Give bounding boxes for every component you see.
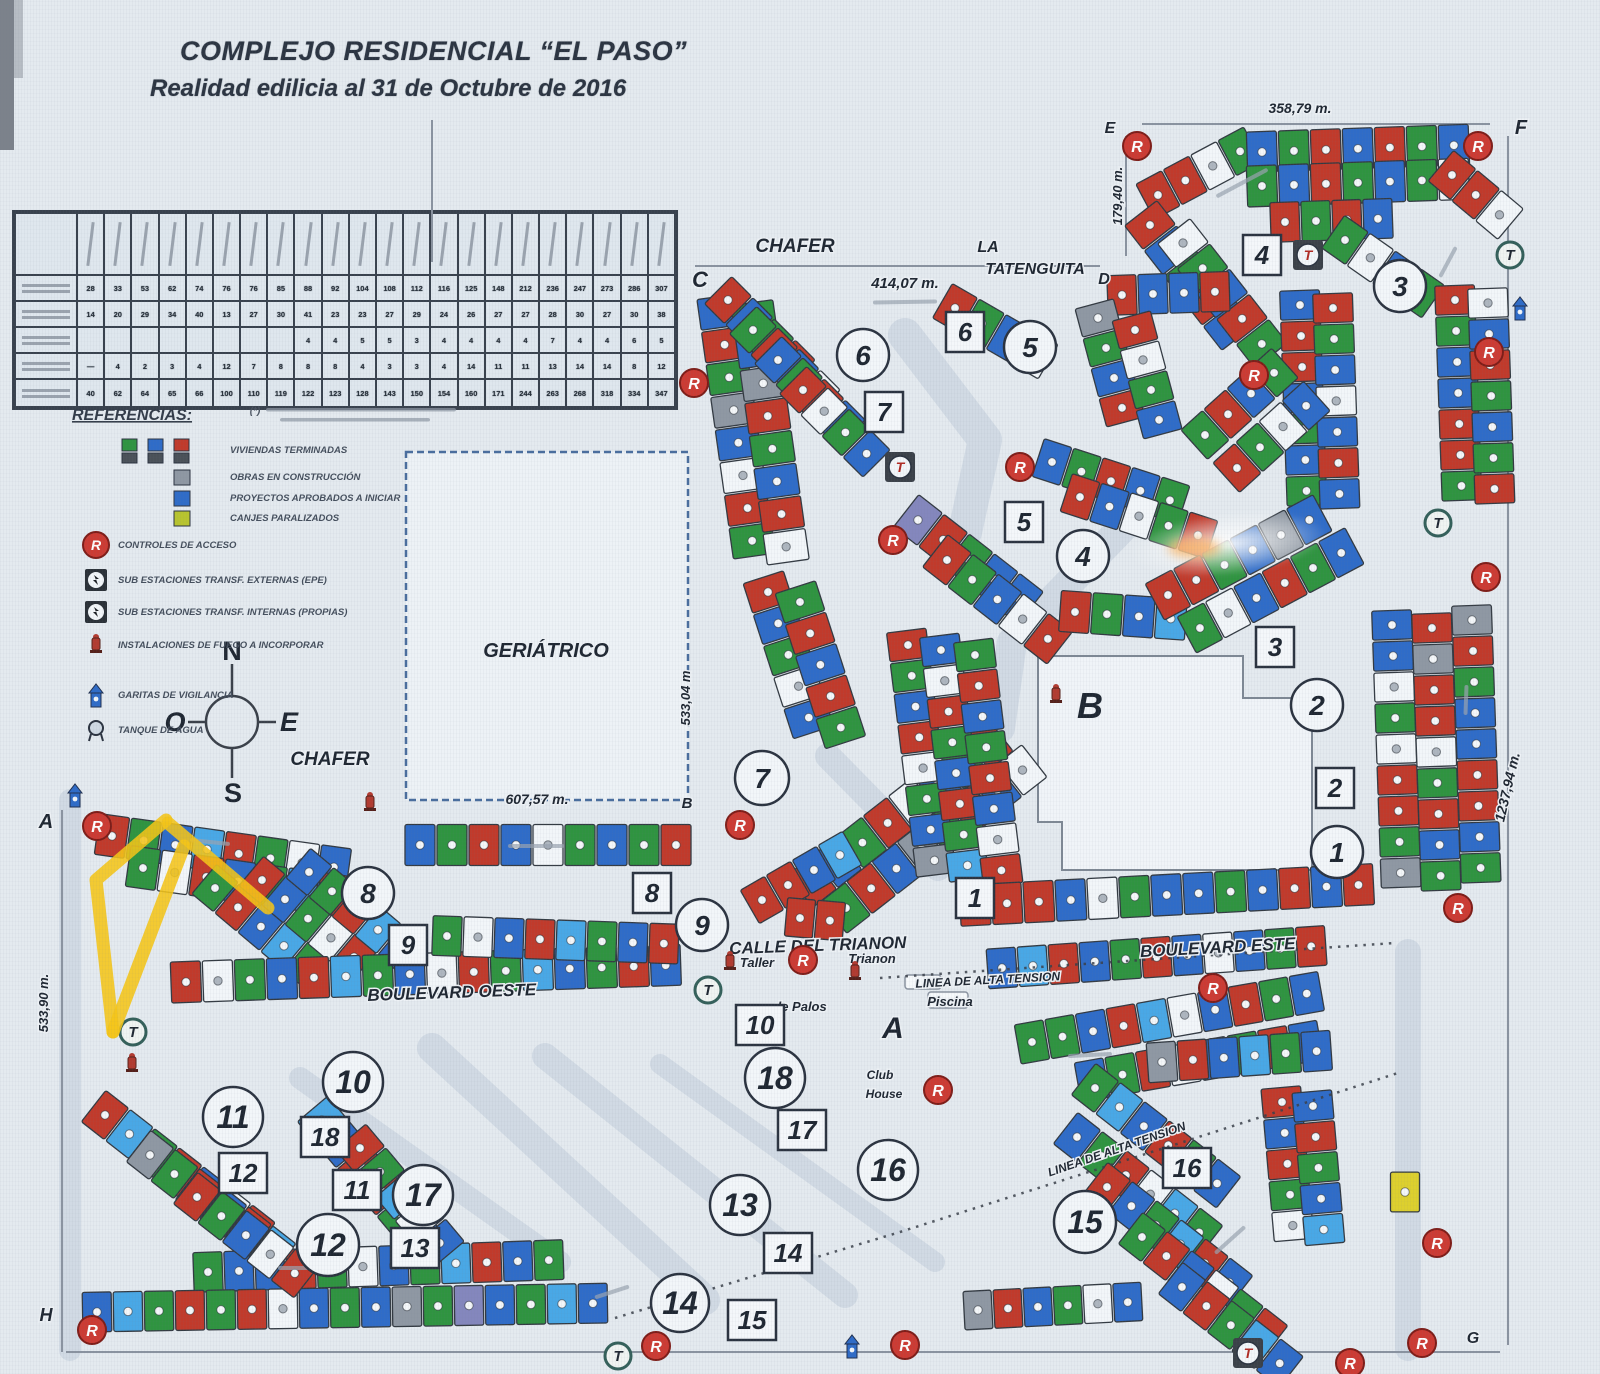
lot-cell-dot (1484, 299, 1493, 308)
lot-cell (330, 955, 361, 997)
lot-strip (1468, 288, 1515, 504)
guard-post-icon (89, 684, 103, 707)
photo-edge-artifact (0, 0, 14, 150)
lot-cell-dot (1476, 864, 1485, 873)
lot-cell (1373, 641, 1414, 671)
substation-icon (85, 569, 107, 591)
legend-note-smudge (280, 418, 430, 422)
lot-cell (1200, 271, 1230, 312)
lot-cell (463, 917, 493, 958)
lot-cell (1295, 926, 1327, 968)
lot-cell (1374, 161, 1405, 203)
guard-post-icon (845, 1335, 859, 1358)
lot-cell-dot (1389, 652, 1398, 661)
lot-cell (1138, 274, 1168, 315)
number-marker-circle: 16 (858, 1140, 918, 1200)
guard-post-dot (94, 697, 99, 702)
guard-post-icon (1513, 297, 1527, 320)
substation-icon (85, 601, 107, 623)
lot-cell-dot (763, 411, 772, 420)
lot-cell (1059, 591, 1092, 634)
lot-cell-dot (1390, 683, 1399, 692)
lot-cell-dot (1374, 214, 1383, 223)
number-marker-circle: 15 (1054, 1191, 1116, 1253)
number-marker-box: 3 (1256, 627, 1294, 667)
r-letter: R (1483, 345, 1495, 362)
lot-cell-dot (1123, 1298, 1132, 1307)
lot-cell-dot (342, 972, 351, 981)
access-control-marker: R (680, 369, 708, 397)
lot-cell (1375, 703, 1416, 733)
lot-cell (1279, 867, 1311, 909)
access-control-marker: R (1199, 974, 1227, 1002)
lot-cell (1474, 474, 1515, 504)
lot-cell-dot (993, 835, 1002, 844)
lot-cell-dot (1354, 880, 1363, 889)
legend-item: SUB ESTACIONES TRANSF. EXTERNAS (EPE) (85, 569, 327, 591)
lot-cell (1418, 799, 1459, 829)
lot-cell (587, 921, 617, 962)
lot-cell-dot (434, 1302, 443, 1311)
lot-cell-dot (1488, 423, 1497, 432)
lot-cell-dot (1281, 1049, 1290, 1058)
lot-cell-dot (496, 1301, 505, 1310)
map-label: G (1467, 1330, 1479, 1347)
lot-cell-dot (448, 841, 456, 849)
lot-cell (1146, 1041, 1178, 1083)
legend-item-label: TANQUE DE AGUA (118, 725, 204, 736)
lot-cell-dot (1298, 363, 1307, 372)
legend-swatch (122, 439, 137, 451)
lot-cell (170, 961, 201, 1003)
number-marker-box: 12 (219, 1153, 267, 1193)
lot-cell-dot (982, 743, 991, 752)
lot-cell-dot (1314, 1163, 1323, 1172)
lot-cell (1391, 1172, 1420, 1212)
lot-cell-dot (1354, 144, 1363, 153)
legend-heading: REFERENCIAS: (72, 407, 192, 424)
hydrant-body (851, 965, 859, 977)
number-marker-circle: 1 (1311, 826, 1363, 878)
lot-cell (113, 1291, 143, 1331)
number-marker-box: 5 (1005, 502, 1043, 542)
lot-cell-dot (597, 963, 606, 972)
lot-cell-dot (1394, 807, 1403, 816)
lot-cell (299, 1288, 329, 1328)
lot-cell (1456, 729, 1497, 759)
tank-leg (89, 734, 91, 741)
lot-cell (1228, 982, 1263, 1026)
lot-cell-dot (1392, 745, 1401, 754)
site-plan-photo: COMPLEJO RESIDENCIAL “EL PASO” Realidad … (0, 0, 1600, 1374)
number-marker-box: 1 (956, 878, 994, 918)
number-marker-box: 2 (1316, 768, 1354, 808)
lot-cell-dot (1472, 740, 1481, 749)
lot-cell (1259, 977, 1294, 1021)
lot-cell-dot (372, 1303, 381, 1312)
marker-box-number: 6 (958, 317, 973, 347)
lot-cell-dot (310, 1304, 319, 1313)
marker-box-number: 4 (1254, 240, 1270, 270)
lot-cell-dot (1130, 892, 1139, 901)
r-letter: R (650, 1339, 662, 1356)
map-label: C (692, 267, 709, 292)
lot-cell-dot (1093, 1299, 1102, 1308)
lot-cell (1372, 610, 1413, 640)
lot-cell (1301, 1030, 1333, 1072)
access-control-marker: R (1475, 338, 1503, 366)
legend-item: TANQUE DE AGUA (89, 721, 204, 741)
lot-cell-dot (469, 968, 478, 977)
lot-cell-dot (1436, 872, 1445, 881)
lot-cell-dot (1281, 218, 1290, 227)
legend-item: INSTALACIONES DE FUEGO A INCORPORAR (90, 634, 324, 653)
lot-cell (745, 398, 791, 435)
lot-cell (1083, 1284, 1113, 1324)
marker-box-number: 18 (311, 1122, 340, 1152)
lot-cell (392, 1286, 422, 1326)
lot-cell-dot (1308, 1101, 1317, 1110)
r-letter: R (899, 1338, 911, 1355)
lot-cell-dot (608, 841, 616, 849)
lot-cell-dot (1331, 366, 1340, 375)
lot-cell-dot (1334, 459, 1343, 468)
lot-cell (469, 825, 499, 866)
lot-cell (547, 1284, 577, 1324)
map-label: Taller (740, 955, 775, 970)
lot-cell-dot (505, 934, 514, 943)
map-label: F (1515, 117, 1528, 139)
r-letter: R (1416, 1336, 1428, 1353)
lot-cell-dot (734, 438, 743, 447)
legend-item: PROYECTOS APROBADOS A INICIAR (174, 491, 400, 506)
lot-cell-dot (907, 671, 916, 680)
map-label: 607,57 m. (505, 791, 568, 807)
lot-cell (1045, 1015, 1080, 1059)
r-letter: R (1452, 901, 1464, 918)
map-label: 358,79 m. (1268, 100, 1331, 116)
lot-cell (976, 823, 1019, 857)
number-marker-box: 8 (633, 873, 671, 913)
lot-cell-dot (1457, 482, 1466, 491)
access-control-marker: R (1423, 1229, 1451, 1257)
lot-strip (432, 916, 679, 964)
lot-cell-dot (1429, 655, 1438, 664)
lot-cell-dot (1312, 1047, 1321, 1056)
legend-swatch-dark (174, 453, 189, 463)
map-label: A (38, 811, 53, 833)
lot-cell (1414, 675, 1455, 705)
lot-cell-dot (1453, 358, 1462, 367)
lot-cell (1079, 941, 1111, 983)
marker-box-number: 5 (1017, 507, 1032, 537)
access-control-marker: R (789, 946, 817, 974)
lot-cell-dot (951, 768, 960, 777)
access-control-marker: R (1408, 1329, 1436, 1357)
number-marker-box: 7 (865, 392, 903, 432)
lot-cell (534, 1240, 564, 1281)
map-label: 533,04 m (678, 670, 693, 725)
lot-cell-dot (997, 866, 1006, 875)
lot-cell-dot (1435, 841, 1444, 850)
tank-bowl (89, 721, 103, 735)
marker-circle-number: 3 (1392, 271, 1408, 302)
legend-swatch (174, 511, 190, 526)
r-letter: R (91, 537, 102, 553)
r-letter: R (1131, 139, 1143, 156)
lot-cell (1075, 1009, 1110, 1053)
lot-cell-dot (501, 966, 510, 975)
lot-cell-dot (406, 970, 415, 979)
lot-cell (969, 761, 1012, 795)
lot-cell (1319, 479, 1360, 509)
lot-cell (234, 959, 265, 1001)
map-label: B (1077, 685, 1103, 726)
number-marker-circle: 9 (676, 899, 728, 951)
lot-cell (1177, 1039, 1209, 1081)
guard-post-dot (1518, 310, 1523, 315)
r-letter: R (1431, 1236, 1443, 1253)
lot-cell-dot (974, 1306, 983, 1315)
lot-cell-dot (567, 936, 576, 945)
lot-cell (1310, 163, 1341, 205)
lot-cell (472, 1242, 502, 1283)
street-name-smudge (1438, 246, 1457, 278)
lot-cell-dot (416, 841, 424, 849)
lot-cell (1087, 877, 1119, 919)
map-label: H (40, 1305, 54, 1325)
marker-box-number: 16 (1173, 1153, 1202, 1183)
lot-cell-dot (660, 939, 669, 948)
lot-cell-dot (777, 509, 786, 518)
photo-edge-artifact (14, 0, 23, 78)
hydrant-body (128, 1057, 136, 1069)
lot-cell-dot (1277, 1097, 1286, 1106)
lot-cell-dot (1134, 612, 1143, 621)
lot-cell (1377, 765, 1418, 795)
lot-cell-dot (1428, 624, 1437, 633)
lot-cell (330, 1288, 360, 1328)
lot-cell-dot (729, 405, 738, 414)
lot-cell (1452, 605, 1493, 635)
lot-cell (1314, 324, 1355, 354)
number-marker-circle: 3 (1374, 260, 1426, 312)
lot-cell-dot (1490, 485, 1499, 494)
lot-cell (266, 958, 297, 1000)
lot-cell-dot (825, 916, 834, 925)
r-letter: R (1344, 1356, 1356, 1373)
lot-cell-dot (1430, 686, 1439, 695)
lot-cell-dot (482, 1258, 491, 1267)
lot-cell (1455, 698, 1496, 728)
lot-cell (494, 918, 524, 959)
lot-cell-dot (1322, 179, 1331, 188)
lot-cell-dot (235, 1267, 244, 1276)
lot-cell (991, 882, 1023, 924)
lot-strip (963, 1282, 1143, 1330)
lot-cell-dot (1301, 456, 1310, 465)
compass-east: E (280, 707, 299, 737)
water-tank-icon (89, 721, 103, 741)
lot-cell (749, 430, 795, 467)
lot-cell-dot (341, 1303, 350, 1312)
legend-item-label: OBRAS EN CONSTRUCCIÓN (230, 471, 362, 483)
lot-cell-dot (795, 913, 804, 922)
number-marker-box: 11 (333, 1170, 381, 1210)
transformer-marker: T (1497, 242, 1523, 268)
lot-cell (1119, 875, 1151, 917)
legend-swatch (174, 491, 190, 506)
guard-post-roof (68, 784, 82, 793)
lot-cell (1167, 993, 1202, 1037)
compass-circle (206, 696, 258, 748)
lot-cell-dot (915, 733, 924, 742)
lot-cell-dot (738, 471, 747, 480)
lot-cell (516, 1284, 546, 1324)
lot-cell-dot (1258, 886, 1267, 895)
lot-cell (1473, 443, 1514, 473)
lot-cell (1457, 760, 1498, 790)
marker-circle-number: 18 (757, 1060, 793, 1096)
marker-circle-number: 17 (405, 1177, 443, 1213)
lot-cell-dot (926, 825, 935, 834)
lot-cell-dot (1280, 1128, 1289, 1137)
lot-cell (1415, 706, 1456, 736)
number-marker-box: 14 (764, 1233, 812, 1273)
lot-cell-dot (1286, 1190, 1295, 1199)
marker-circle-number: 5 (1022, 332, 1038, 363)
lot-cell (1303, 1213, 1345, 1245)
transformer-marker-boxed: T (885, 452, 915, 482)
t-letter: T (896, 459, 906, 475)
lot-cell-dot (1288, 1221, 1297, 1230)
t-letter: T (1244, 1345, 1254, 1361)
lot-cell-dot (720, 340, 729, 349)
lot-cell-dot (452, 1259, 461, 1268)
lot-cell-dot (1329, 304, 1338, 313)
lot-cell-dot (1290, 884, 1299, 893)
marker-box-number: 13 (401, 1233, 430, 1263)
lot-cell-dot (936, 645, 945, 654)
lot-cell (1419, 830, 1460, 860)
lot-cell-dot (1335, 490, 1344, 499)
lot-cell-dot (374, 971, 383, 980)
map-label: TATENGUITA (985, 261, 1085, 278)
lot-cell (175, 1290, 205, 1330)
fire-hydrant-icon (126, 1053, 138, 1072)
lot-cell-dot (1452, 327, 1461, 336)
lot-cell-dot (974, 681, 983, 690)
lot-cell (1023, 880, 1055, 922)
marker-circle-number: 8 (360, 878, 376, 909)
lot-cell-dot (944, 707, 953, 716)
marker-box-number: 1 (968, 883, 982, 913)
hydrant-base (364, 808, 376, 811)
lot-cell-dot (403, 1302, 412, 1311)
lot-cell-dot (465, 1301, 474, 1310)
lot-cell-dot (948, 738, 957, 747)
lot-cell-dot (724, 373, 733, 382)
fire-hydrant-icon (90, 634, 102, 653)
access-control-marker: R (879, 526, 907, 554)
number-marker-circle: 14 (651, 1274, 709, 1332)
number-marker-circle: 4 (1057, 530, 1109, 582)
lot-cell (1239, 1035, 1271, 1077)
lot-cell-dot (1454, 389, 1463, 398)
lot-cell (597, 825, 627, 866)
lot-cell (1468, 288, 1509, 318)
lot-cell-dot (1418, 176, 1427, 185)
marker-circle-number: 6 (855, 340, 871, 371)
lot-cell-dot (598, 937, 607, 946)
lot-cell-dot (1188, 1055, 1197, 1064)
lot-cell (1295, 1121, 1337, 1153)
marker-circle-number: 16 (870, 1152, 906, 1188)
lot-cell-dot (527, 1300, 536, 1309)
hydrant-base (126, 1069, 138, 1072)
lot-cell-dot (310, 973, 319, 982)
marker-box-number: 9 (401, 930, 416, 960)
map-label: E (1105, 120, 1117, 137)
lot-cell (629, 825, 659, 866)
lot-cell-dot (155, 1307, 164, 1316)
lot-cell-dot (204, 1268, 213, 1277)
legend-swatch (174, 439, 189, 451)
lot-cell (193, 1252, 223, 1293)
access-control-marker: R (642, 1332, 670, 1360)
lot-cell-dot (1401, 1188, 1409, 1196)
lot-cell-dot (1451, 296, 1460, 305)
lot-cell-dot (1395, 838, 1404, 847)
lot-cell-dot (1470, 678, 1479, 687)
map-label: B (682, 795, 693, 812)
lot-cell-dot (1290, 181, 1299, 190)
lot-cell-dot (1297, 332, 1306, 341)
guard-post-icon (68, 784, 82, 807)
lot-cell (1317, 417, 1358, 447)
marker-box-number: 12 (229, 1158, 258, 1188)
lot-cell (1460, 853, 1501, 883)
lot-cell-dot (1290, 147, 1299, 156)
lot-cell (1318, 448, 1359, 478)
lot-cell-dot (1333, 428, 1342, 437)
lot-cell-dot (1296, 301, 1305, 310)
lot-cell (1270, 1033, 1302, 1075)
lot-cell-dot (1059, 959, 1068, 968)
number-marker-box: 18 (301, 1117, 349, 1157)
lot-cell (961, 700, 1004, 734)
marker-box-number: 11 (344, 1175, 371, 1205)
lot-cell-dot (1418, 142, 1427, 151)
lot-cell (1215, 870, 1247, 912)
lot-cell-dot (565, 964, 574, 973)
lot-cell-dot (536, 935, 545, 944)
marker-circle-number: 4 (1074, 541, 1091, 572)
access-control-marker: R (83, 812, 111, 840)
legend-swatch (148, 439, 163, 451)
lot-cell-dot (1194, 889, 1203, 898)
lot-cell (1053, 1285, 1083, 1325)
lot-cell-dot (443, 932, 452, 941)
lot-cell (1342, 162, 1373, 204)
number-marker-circle: 5 (1004, 321, 1056, 373)
access-control-marker: R (1464, 132, 1492, 160)
lot-cell-dot (918, 763, 927, 772)
legend-item: CANJES PARALIZADOS (174, 511, 340, 526)
lot-cell (1023, 1287, 1053, 1327)
marker-circle-number: 9 (694, 910, 710, 941)
lot-cell (954, 638, 997, 672)
